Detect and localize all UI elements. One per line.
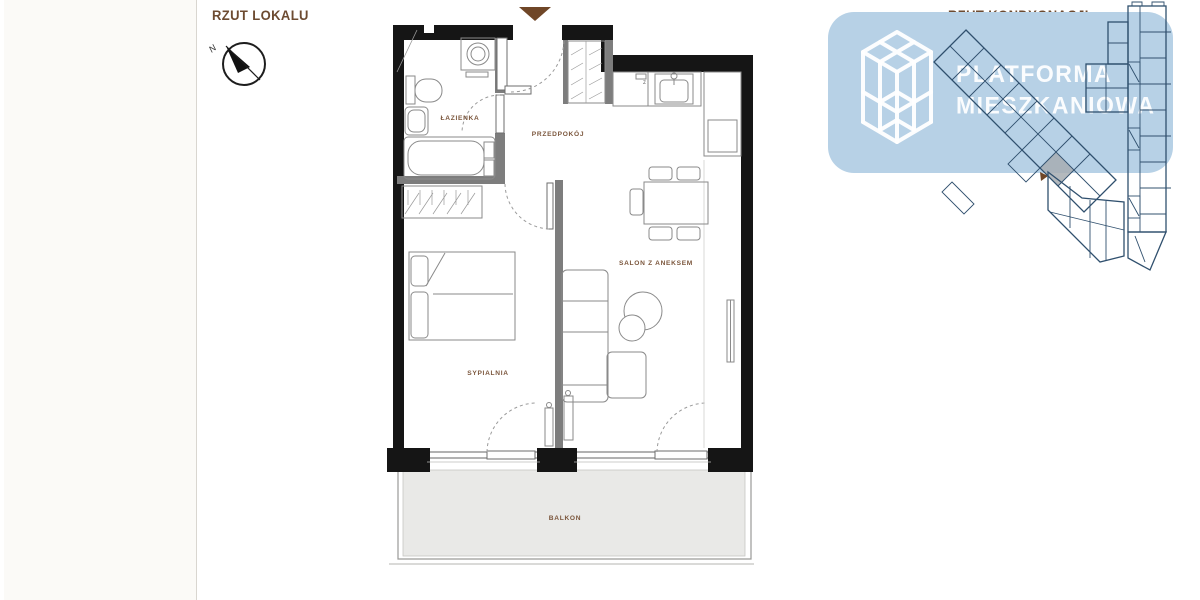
storey-diagonal-wing (934, 30, 1116, 214)
radiator (727, 300, 734, 362)
storey-connector-blocks (1086, 22, 1128, 112)
bathroom-sink (405, 107, 428, 135)
room-label-przedpokoj: PRZEDPOKÓJ (532, 129, 584, 138)
kitchen-sink (655, 73, 693, 104)
room-label-salon: SALON Z ANEKSEM (619, 260, 693, 267)
dining-table (630, 167, 708, 240)
entrance-door-leaf (497, 38, 507, 90)
balcony-door-salon (655, 451, 707, 459)
bedroom-door-leaf (547, 183, 553, 229)
washing-machine (461, 38, 495, 77)
compass-icon: N (205, 35, 275, 97)
compass-north-label: N (207, 42, 219, 54)
left-sidebar-panel (4, 0, 197, 600)
room-label-balkon: BALKON (549, 515, 581, 522)
highlighted-unit (1040, 152, 1074, 186)
unit-plan-title: RZUT LOKALU (212, 7, 309, 23)
bed (409, 252, 515, 340)
room-label-sypialnia: SYPIALNIA (467, 370, 508, 377)
balcony-door-bedroom (487, 451, 535, 459)
room-label-lazienka: ŁAZIENKA (441, 115, 480, 122)
storey-right-wing (1128, 2, 1171, 232)
kitchen-sink-mark: z (643, 80, 646, 86)
storey-floor-plan (890, 0, 1200, 290)
entrance-triangle-icon (519, 7, 551, 21)
toilet (406, 76, 442, 104)
hallway-closet (568, 41, 605, 103)
unit-floor-plan: z ŁAZIENKA PRZEDPOK (383, 0, 768, 580)
bathroom-door-leaf (496, 95, 504, 133)
bathtub (404, 137, 495, 179)
storey-lower-cluster (1048, 172, 1166, 270)
kitchen-tall-unit (704, 72, 741, 448)
bedroom-wardrobe (402, 186, 482, 218)
coffee-tables (619, 292, 662, 341)
interior-walls (397, 38, 613, 448)
